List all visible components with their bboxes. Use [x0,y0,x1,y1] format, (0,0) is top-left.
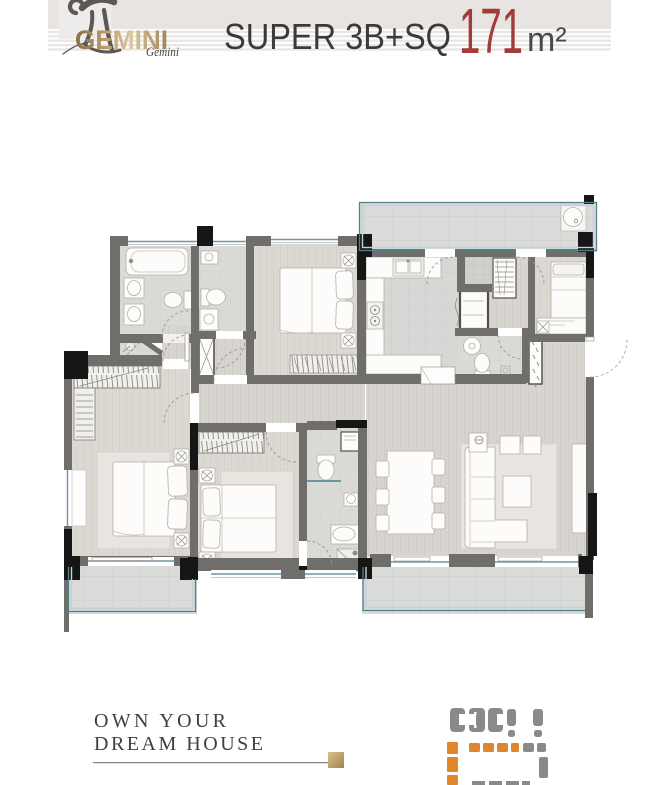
svg-text:m²: m² [527,21,567,59]
svg-text:OWN YOUR: OWN YOUR [94,710,227,732]
svg-text:SUPER 3B+SQ: SUPER 3B+SQ [224,16,451,57]
svg-text:171: 171 [459,0,523,67]
svg-text:Gemini: Gemini [146,44,179,59]
svg-text:DREAM HOUSE: DREAM HOUSE [94,733,263,755]
